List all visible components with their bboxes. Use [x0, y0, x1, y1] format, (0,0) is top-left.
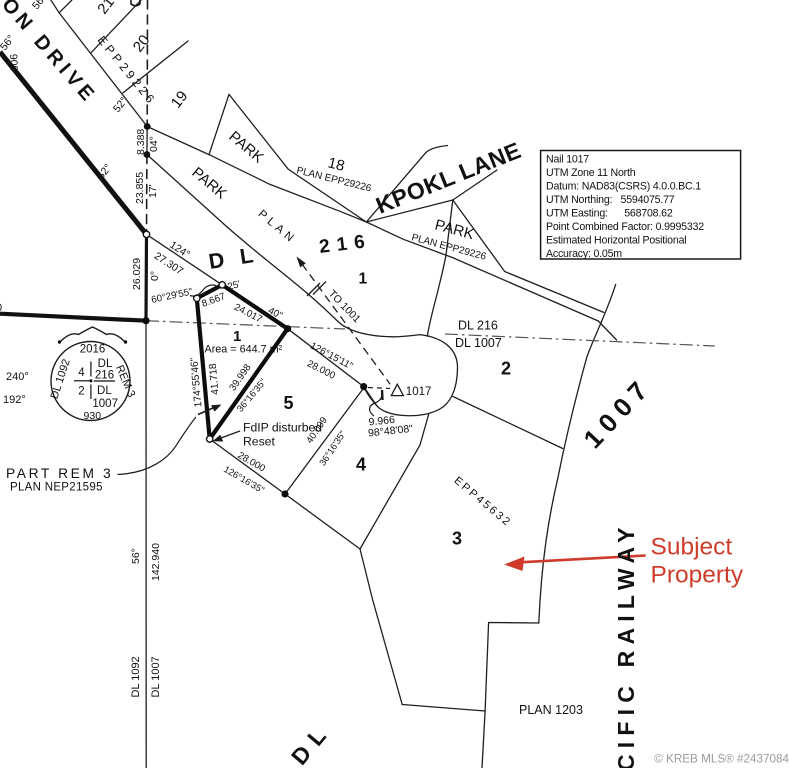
- svg-text:142.940: 142.940: [150, 543, 162, 581]
- svg-text:8.388: 8.388: [135, 129, 147, 155]
- svg-text:Nail 1017: Nail 1017: [546, 154, 589, 166]
- svg-text:930: 930: [84, 410, 102, 422]
- svg-text:© KREB MLS® #2437084: © KREB MLS® #2437084: [654, 753, 789, 766]
- svg-text:17': 17': [147, 184, 159, 198]
- svg-text:240°: 240°: [6, 371, 29, 383]
- svg-text:23.855: 23.855: [134, 172, 146, 204]
- svg-text:1017: 1017: [406, 386, 432, 398]
- svg-text:CIFIC RAILWAY: CIFIC RAILWAY: [613, 521, 639, 768]
- svg-text:Area = 644.7 m²: Area = 644.7 m²: [205, 344, 283, 356]
- svg-text:3: 3: [452, 529, 462, 549]
- svg-text:DL 1007: DL 1007: [150, 656, 162, 697]
- svg-text:DL 1007: DL 1007: [455, 336, 502, 350]
- svg-text:DL 1092: DL 1092: [130, 656, 142, 697]
- svg-text:Reset: Reset: [243, 435, 275, 449]
- svg-text:2: 2: [78, 386, 84, 398]
- svg-text:4: 4: [356, 455, 366, 475]
- svg-text:PLAN NEP21595: PLAN NEP21595: [10, 482, 103, 494]
- svg-text:04°: 04°: [148, 136, 160, 152]
- svg-text:0: 0: [0, 302, 2, 314]
- svg-text:56°: 56°: [130, 548, 142, 564]
- svg-text:Property: Property: [651, 562, 744, 589]
- svg-text:192°: 192°: [3, 394, 26, 406]
- svg-text:1: 1: [359, 271, 368, 288]
- svg-text:1: 1: [233, 328, 241, 345]
- svg-text:909: 909: [7, 54, 20, 72]
- svg-text:PLAN 1203: PLAN 1203: [519, 703, 583, 717]
- svg-text:Datum: NAD83(CSRS) 4.0.0.BC.1: Datum: NAD83(CSRS) 4.0.0.BC.1: [546, 181, 701, 193]
- svg-text:Accuracy: 0.05m: Accuracy: 0.05m: [546, 248, 622, 260]
- svg-text:Subject: Subject: [651, 534, 733, 561]
- svg-text:2016: 2016: [80, 344, 106, 356]
- svg-text:DL 216: DL 216: [458, 319, 498, 333]
- svg-text:UTM Northing: 5594075.77: UTM Northing: 5594075.77: [546, 194, 675, 206]
- svg-text:4: 4: [78, 367, 85, 379]
- svg-text:5: 5: [284, 393, 294, 413]
- svg-text:2: 2: [501, 358, 511, 378]
- svg-text:DL: DL: [97, 385, 112, 397]
- svg-text:26.029: 26.029: [131, 258, 143, 290]
- svg-text:DL: DL: [98, 358, 113, 370]
- svg-text:1007: 1007: [92, 398, 118, 410]
- svg-text:UTM Zone 11 North: UTM Zone 11 North: [546, 167, 636, 179]
- svg-text:PART REM 3: PART REM 3: [6, 466, 113, 481]
- svg-text:Estimated Horizontal Positiona: Estimated Horizontal Positional: [546, 235, 686, 247]
- svg-text:UTM Easting: 568708.62: UTM Easting: 568708.62: [546, 208, 673, 220]
- svg-text:216: 216: [95, 370, 114, 382]
- svg-text:0°: 0°: [149, 271, 161, 281]
- svg-text:Point Combined Factor: 0.99953: Point Combined Factor: 0.9995332: [546, 221, 704, 233]
